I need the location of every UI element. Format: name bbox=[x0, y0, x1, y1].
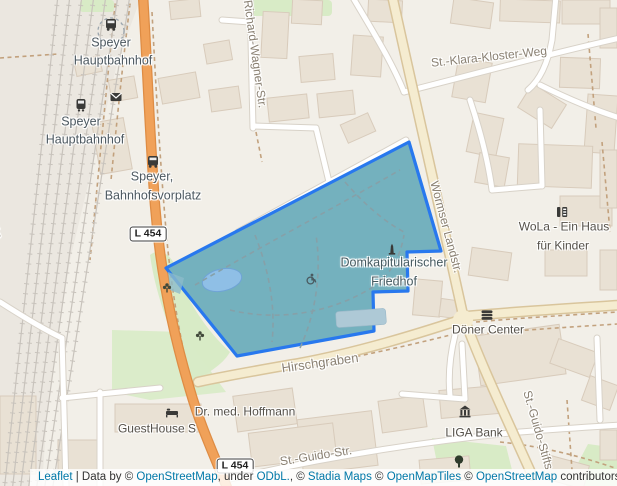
attribution-text: | Data by © bbox=[73, 471, 137, 483]
fast-food-icon bbox=[482, 310, 493, 319]
openstreetmap-link[interactable]: OpenStreetMap bbox=[136, 471, 217, 483]
highlighted-cemetery-polygon[interactable] bbox=[166, 142, 441, 356]
building bbox=[517, 144, 592, 189]
building bbox=[267, 94, 309, 122]
attribution-text: © bbox=[372, 471, 387, 483]
building bbox=[115, 404, 201, 432]
building bbox=[299, 54, 335, 83]
openstreetmap-link[interactable]: OpenStreetMap bbox=[476, 471, 557, 483]
building bbox=[468, 247, 512, 280]
stadia-maps-link[interactable]: Stadia Maps bbox=[308, 471, 372, 483]
building bbox=[412, 279, 442, 317]
building bbox=[600, 430, 617, 460]
building bbox=[233, 388, 297, 432]
attribution-text: , © bbox=[290, 471, 308, 483]
attribution-text: , under bbox=[218, 471, 257, 483]
building bbox=[158, 72, 200, 104]
attribution-text: contributors bbox=[557, 471, 617, 483]
attribution-bar: Leaflet | Data by © OpenStreetMap, under… bbox=[30, 469, 617, 486]
building bbox=[545, 250, 587, 276]
route-badge-l454: L 454 bbox=[130, 227, 167, 242]
building bbox=[209, 86, 242, 112]
building bbox=[169, 0, 201, 20]
building bbox=[600, 150, 617, 208]
mail-icon bbox=[111, 93, 122, 101]
odbl-link[interactable]: ODbL. bbox=[257, 471, 290, 483]
leaflet-link[interactable]: Leaflet bbox=[38, 471, 73, 483]
openmaptiles-link[interactable]: OpenMapTiles bbox=[387, 471, 461, 483]
building bbox=[600, 250, 617, 290]
building bbox=[291, 0, 322, 25]
building bbox=[203, 40, 232, 64]
building bbox=[340, 113, 376, 143]
building bbox=[378, 395, 427, 433]
building bbox=[450, 0, 493, 29]
map-tiles bbox=[0, 0, 617, 486]
building bbox=[559, 57, 600, 88]
building bbox=[584, 94, 617, 154]
building bbox=[261, 11, 289, 58]
map-canvas[interactable]: Speyer Hauptbahnhof Speyer Hauptbahnhof … bbox=[0, 0, 617, 486]
building bbox=[317, 90, 355, 118]
attribution-text: © bbox=[461, 471, 476, 483]
building bbox=[92, 118, 133, 175]
